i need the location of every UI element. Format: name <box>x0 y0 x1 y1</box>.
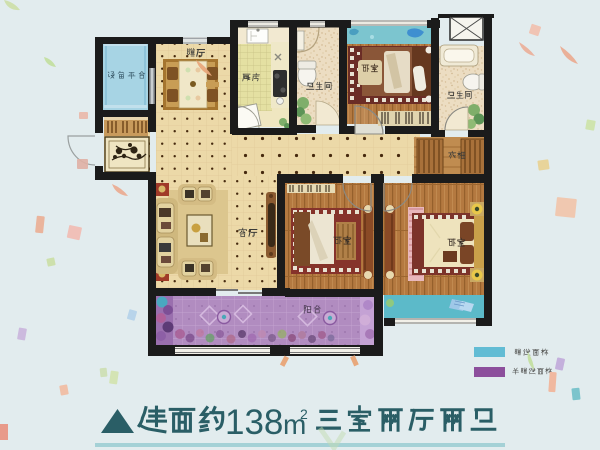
svg-text:138: 138 <box>225 403 283 442</box>
svg-text:2: 2 <box>300 406 308 422</box>
